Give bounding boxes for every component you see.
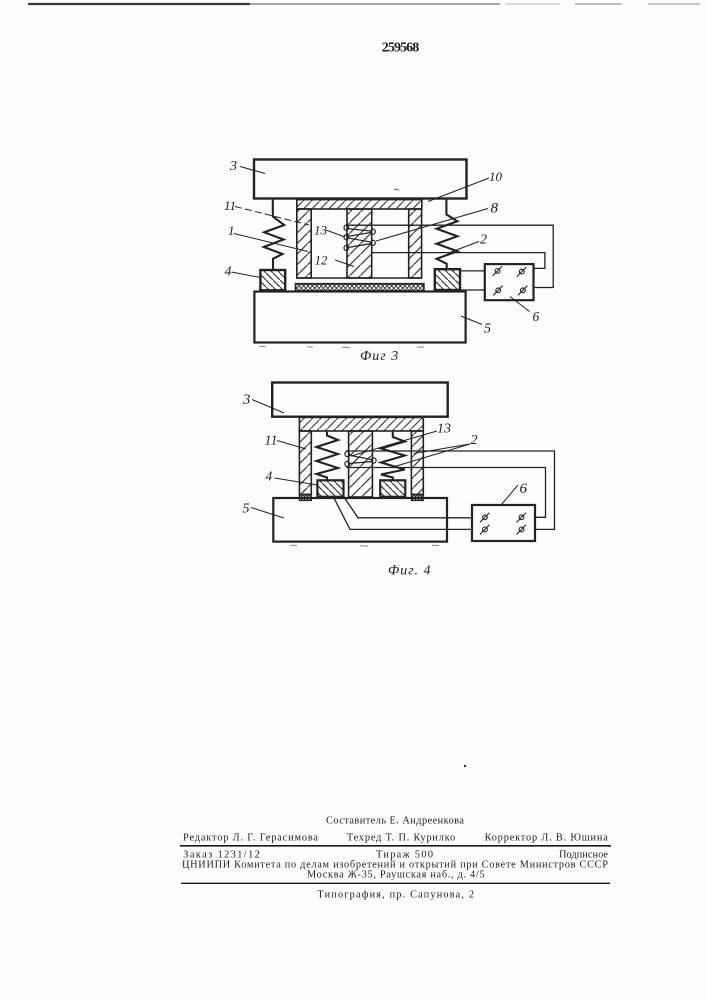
svg-text:11: 11: [265, 433, 278, 448]
svg-text:4: 4: [225, 265, 232, 280]
svg-text:6: 6: [520, 481, 528, 497]
svg-text:2: 2: [480, 233, 487, 248]
svg-text:3: 3: [242, 392, 251, 408]
svg-text:5: 5: [484, 321, 491, 336]
svg-text:13: 13: [437, 422, 451, 437]
svg-text:Корректор Л. В. Юшина: Корректор Л. В. Юшина: [485, 833, 609, 844]
svg-text:6: 6: [533, 309, 540, 324]
svg-text:Фиг 3: Фиг 3: [360, 349, 399, 364]
svg-text:Фиг. 4: Фиг. 4: [388, 564, 432, 579]
svg-text:11: 11: [224, 198, 236, 213]
svg-text:Москва Ж-35, Раушская наб., д.: Москва Ж-35, Раушская наб., д. 4/5: [307, 870, 485, 881]
svg-text:259568: 259568: [382, 41, 420, 56]
svg-text:3: 3: [229, 159, 237, 174]
svg-text:12: 12: [315, 253, 329, 268]
svg-text:4: 4: [266, 469, 273, 484]
svg-text:10: 10: [489, 169, 503, 184]
svg-text:1: 1: [228, 223, 235, 238]
svg-text:5: 5: [243, 502, 250, 517]
svg-text:Техред Т. П. Курилко: Техред Т. П. Курилко: [347, 833, 455, 844]
svg-text:Редактор Л. Г. Герасимова: Редактор Л. Г. Герасимова: [183, 833, 318, 844]
svg-text:2: 2: [471, 433, 478, 448]
svg-text:13: 13: [314, 223, 328, 238]
svg-text:Типография, пр. Сапунова, 2: Типография, пр. Сапунова, 2: [317, 890, 474, 901]
svg-text:Составитель Е. Андреенкова: Составитель Е. Андреенкова: [326, 816, 464, 827]
svg-text:8: 8: [491, 201, 499, 217]
